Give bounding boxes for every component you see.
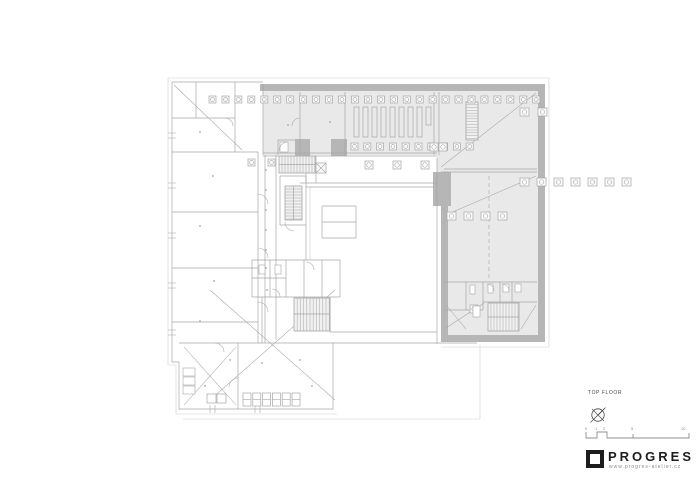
drawing-sheet: TOP FLOOR 0 1 2 5 10 PROGRES www.progres… [0, 0, 700, 491]
studio-website: www.progres-atelier.cz [609, 464, 681, 470]
elevator-symbol [316, 163, 326, 173]
bottom-pair-squares [207, 394, 226, 403]
ladder-hatch [466, 102, 478, 140]
corridor-squares-mid [365, 161, 429, 169]
logo-square-icon [586, 450, 604, 468]
floor-label: TOP FLOOR [588, 390, 622, 396]
courtyard-and-core [252, 158, 437, 344]
stair-central [294, 298, 330, 331]
corridor-squares-left [248, 159, 275, 166]
table-row-bottom [243, 393, 300, 406]
wing-windows-right-column [520, 178, 631, 186]
north-arrow-icon [587, 404, 609, 426]
studio-logo-text: PROGRES [608, 449, 694, 464]
scale-bar-icon: 0 1 2 5 10 [585, 428, 693, 442]
shelf-stack [183, 368, 195, 394]
